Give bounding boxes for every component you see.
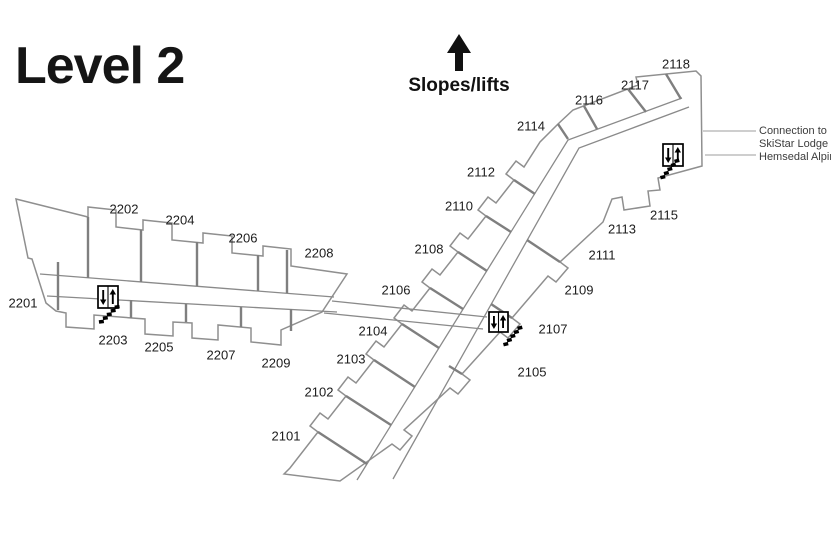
room-label-2117: 2117 (621, 78, 649, 93)
slopes-label: Slopes/lifts (408, 75, 509, 96)
connection-note-line-3: Hemsedal Alpin (759, 151, 831, 163)
room-label-2205: 2205 (145, 340, 174, 355)
room-label-2111: 2111 (589, 248, 616, 263)
room-label-2109: 2109 (565, 283, 594, 298)
room-label-2113: 2113 (608, 222, 636, 237)
up-arrow-icon (447, 34, 471, 71)
room-label-2203: 2203 (99, 333, 128, 348)
room-label-2103: 2103 (337, 352, 366, 367)
connection-note-line-1: Connection to (759, 125, 827, 137)
room-label-2108: 2108 (415, 242, 444, 257)
room-label-2209: 2209 (262, 356, 291, 371)
right-wing-outline (284, 71, 702, 481)
elevator-icon (663, 144, 683, 166)
room-label-2110: 2110 (445, 199, 473, 214)
leader-lines (703, 131, 756, 155)
room-label-2112: 2112 (467, 165, 495, 180)
room-label-2204: 2204 (166, 213, 195, 228)
room-label-2118: 2118 (662, 57, 690, 72)
room-label-2208: 2208 (305, 246, 334, 261)
room-label-2106: 2106 (382, 283, 411, 298)
room-label-2116: 2116 (575, 93, 603, 108)
room-label-2202: 2202 (110, 202, 139, 217)
room-label-2102: 2102 (305, 385, 334, 400)
room-label-2115: 2115 (650, 208, 678, 223)
room-label-2101: 2101 (272, 429, 301, 444)
elevator-icon (98, 286, 118, 308)
connection-note-line-2: SkiStar Lodge (759, 138, 828, 150)
room-label-2206: 2206 (229, 231, 258, 246)
room-label-2114: 2114 (517, 119, 545, 134)
floorplan-page: Level 2 Slopes/lifts Connection to SkiSt… (0, 0, 831, 555)
room-label-2201: 2201 (9, 296, 38, 311)
room-label-2107: 2107 (539, 322, 568, 337)
room-label-2104: 2104 (359, 324, 388, 339)
elevator-icon (489, 312, 508, 332)
room-label-2105: 2105 (518, 365, 547, 380)
floorplan-svg: Slopes/lifts Connection to SkiStar Lodge… (0, 0, 831, 555)
room-label-2207: 2207 (207, 348, 236, 363)
